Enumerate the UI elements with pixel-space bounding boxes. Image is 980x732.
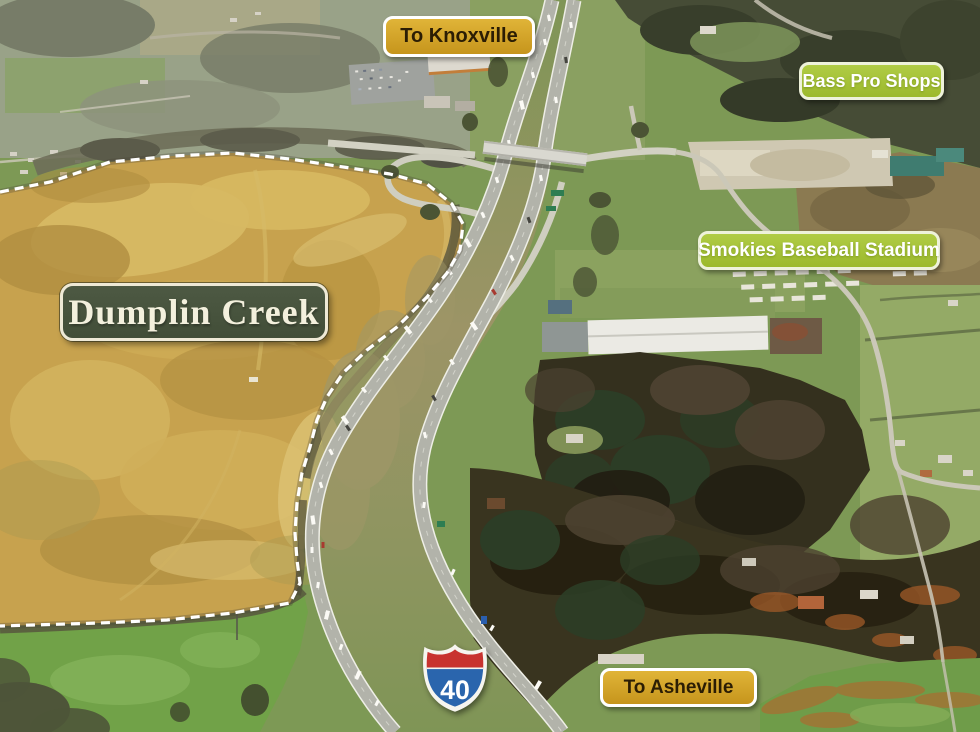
to-knoxville-sign: To Knoxville <box>383 16 535 57</box>
to-asheville-sign: To Asheville <box>600 668 757 707</box>
dumplin-creek-property-sign: Dumplin Creek <box>60 283 328 341</box>
bass-pro-shops-sign: Bass Pro Shops <box>799 62 944 100</box>
smokies-baseball-stadium-sign: Smokies Baseball Stadium <box>698 231 940 270</box>
aerial-site-map: To Knoxville Bass Pro Shops Smokies Base… <box>0 0 980 732</box>
shield-route-number: 40 <box>440 675 470 705</box>
interstate-40-shield-icon: 40 <box>423 643 487 715</box>
aerial-photo <box>0 0 980 732</box>
